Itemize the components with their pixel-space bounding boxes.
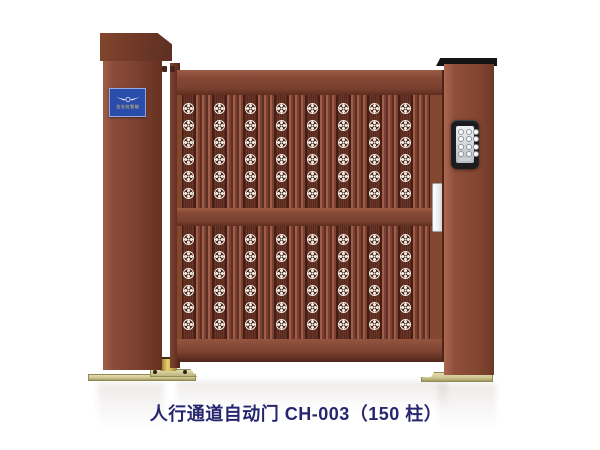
product-photo-stage: 金长虹智能 人行通道自动门 CH-003（150 柱） (0, 0, 600, 450)
rosette-ornament (369, 319, 380, 330)
rosette-ornament (245, 234, 256, 245)
gate-bottom-rail (177, 339, 446, 362)
rosette-ornament (338, 188, 349, 199)
rosette-ornament (276, 302, 287, 313)
rosette-ornament (369, 302, 380, 313)
rosette-ornament (245, 319, 256, 330)
rib-strip (412, 95, 430, 208)
rib-strip (226, 226, 244, 339)
keypad-key (458, 136, 464, 142)
keypad-key (458, 151, 464, 157)
rosette-ornament (245, 302, 256, 313)
access-keypad (451, 120, 479, 169)
rosette-ornament (183, 234, 194, 245)
medallion-strip (213, 95, 226, 208)
medallion-strip (306, 95, 319, 208)
rib-strip (350, 226, 368, 339)
rosette-ornament (276, 251, 287, 262)
rosette-ornament (183, 103, 194, 114)
gate-middle-rail (177, 208, 446, 226)
mount-bolt (183, 370, 187, 374)
rosette-ornament (214, 188, 225, 199)
rosette-ornament (214, 285, 225, 296)
rosette-ornament (369, 188, 380, 199)
rosette-ornament (338, 285, 349, 296)
rosette-ornament (245, 268, 256, 279)
hinge-knob (170, 66, 175, 72)
rosette-ornament (338, 251, 349, 262)
rosette-ornament (214, 319, 225, 330)
medallion-strip (368, 226, 381, 339)
rosette-ornament (338, 120, 349, 131)
keypad-key (473, 144, 479, 150)
rosette-ornament (307, 171, 318, 182)
rib-strip (226, 95, 244, 208)
rosette-ornament (276, 285, 287, 296)
right-pillar-column (444, 64, 494, 375)
rosette-ornament (183, 302, 194, 313)
brand-plaque: 金长虹智能 (109, 88, 146, 117)
rosette-ornament (245, 137, 256, 148)
rosette-ornament (338, 268, 349, 279)
rosette-ornament (338, 137, 349, 148)
rosette-ornament (369, 285, 380, 296)
rib-strip (381, 95, 399, 208)
keypad-key (473, 129, 479, 135)
rosette-ornament (307, 251, 318, 262)
keypad-key (473, 151, 479, 157)
rib-strip (381, 226, 399, 339)
gate-leaf (177, 70, 446, 362)
rib-strip (319, 226, 337, 339)
rosette-ornament (276, 103, 287, 114)
medallion-strip (399, 226, 412, 339)
rosette-ornament (214, 251, 225, 262)
rosette-ornament (183, 137, 194, 148)
keypad-key (466, 144, 472, 150)
rosette-ornament (183, 188, 194, 199)
rosette-ornament (400, 302, 411, 313)
rosette-ornament (276, 234, 287, 245)
keypad-key (466, 129, 472, 135)
rosette-ornament (276, 137, 287, 148)
rosette-ornament (307, 285, 318, 296)
rosette-ornament (400, 234, 411, 245)
rib-strip (257, 226, 275, 339)
rib-strip (195, 95, 213, 208)
medallion-strip (368, 95, 381, 208)
left-pillar-cap (100, 33, 172, 61)
rosette-ornament (245, 120, 256, 131)
rosette-ornament (338, 171, 349, 182)
rosette-ornament (183, 268, 194, 279)
rosette-ornament (183, 120, 194, 131)
rosette-ornament (400, 137, 411, 148)
rosette-ornament (400, 103, 411, 114)
medallion-strip (244, 226, 257, 339)
rosette-ornament (183, 171, 194, 182)
rosette-ornament (369, 120, 380, 131)
medallion-strip (213, 226, 226, 339)
gate-panel-section (182, 226, 430, 339)
rosette-ornament (400, 268, 411, 279)
rosette-ornament (400, 319, 411, 330)
rosette-ornament (214, 137, 225, 148)
rosette-ornament (369, 268, 380, 279)
rib-strip (195, 226, 213, 339)
keypad-key (458, 144, 464, 150)
rosette-ornament (276, 268, 287, 279)
rosette-ornament (276, 171, 287, 182)
rosette-ornament (338, 302, 349, 313)
keypad-key (466, 151, 472, 157)
rosette-ornament (338, 103, 349, 114)
rosette-ornament (307, 188, 318, 199)
rosette-ornament (245, 103, 256, 114)
medallion-strip (275, 95, 288, 208)
brand-plaque-text: 金长虹智能 (116, 105, 139, 109)
medallion-strip (399, 95, 412, 208)
rib-strip (257, 95, 275, 208)
rosette-ornament (400, 251, 411, 262)
rosette-ornament (276, 188, 287, 199)
rosette-ornament (369, 171, 380, 182)
rosette-ornament (369, 234, 380, 245)
wings-emblem-icon (115, 95, 141, 104)
rosette-ornament (307, 268, 318, 279)
rosette-ornament (369, 137, 380, 148)
rosette-ornament (307, 154, 318, 165)
rosette-ornament (400, 171, 411, 182)
rosette-ornament (338, 154, 349, 165)
rosette-ornament (400, 154, 411, 165)
rosette-ornament (400, 120, 411, 131)
rosette-ornament (214, 154, 225, 165)
keypad-key (473, 136, 479, 142)
rosette-ornament (183, 251, 194, 262)
rosette-ornament (183, 319, 194, 330)
rosette-ornament (245, 171, 256, 182)
rosette-ornament (276, 154, 287, 165)
rosette-ornament (214, 234, 225, 245)
keypad-label-bar (459, 158, 471, 161)
rosette-ornament (338, 319, 349, 330)
rosette-ornament (276, 319, 287, 330)
medallion-strip (337, 95, 350, 208)
keypad-key (466, 136, 472, 142)
medallion-strip (337, 226, 350, 339)
rosette-ornament (276, 120, 287, 131)
rib-strip (288, 226, 306, 339)
rosette-ornament (214, 302, 225, 313)
gate-top-rail (177, 70, 446, 95)
gate-panel-section (182, 95, 430, 208)
medallion-strip (244, 95, 257, 208)
rosette-ornament (245, 188, 256, 199)
rib-strip (350, 95, 368, 208)
rosette-ornament (307, 234, 318, 245)
medallion-strip (275, 226, 288, 339)
medallion-strip (306, 226, 319, 339)
rosette-ornament (338, 234, 349, 245)
rosette-ornament (400, 285, 411, 296)
rosette-ornament (183, 285, 194, 296)
rib-strip (412, 226, 430, 339)
product-caption: 人行通道自动门 CH-003（150 柱） (0, 400, 592, 426)
rosette-ornament (214, 120, 225, 131)
rosette-ornament (307, 103, 318, 114)
rosette-ornament (214, 268, 225, 279)
rosette-ornament (369, 154, 380, 165)
rosette-ornament (214, 103, 225, 114)
rosette-ornament (307, 319, 318, 330)
medallion-strip (182, 95, 195, 208)
rosette-ornament (245, 285, 256, 296)
rosette-ornament (400, 188, 411, 199)
rosette-ornament (245, 154, 256, 165)
rosette-ornament (369, 251, 380, 262)
rosette-ornament (245, 251, 256, 262)
rosette-ornament (214, 171, 225, 182)
rosette-ornament (183, 154, 194, 165)
rib-strip (288, 95, 306, 208)
rosette-ornament (307, 120, 318, 131)
rosette-ornament (307, 137, 318, 148)
rib-strip (319, 95, 337, 208)
rosette-ornament (307, 302, 318, 313)
hinge-knob (162, 66, 167, 72)
keypad-key (458, 129, 464, 135)
rosette-ornament (369, 103, 380, 114)
mount-bolt (153, 370, 157, 374)
medallion-strip (182, 226, 195, 339)
